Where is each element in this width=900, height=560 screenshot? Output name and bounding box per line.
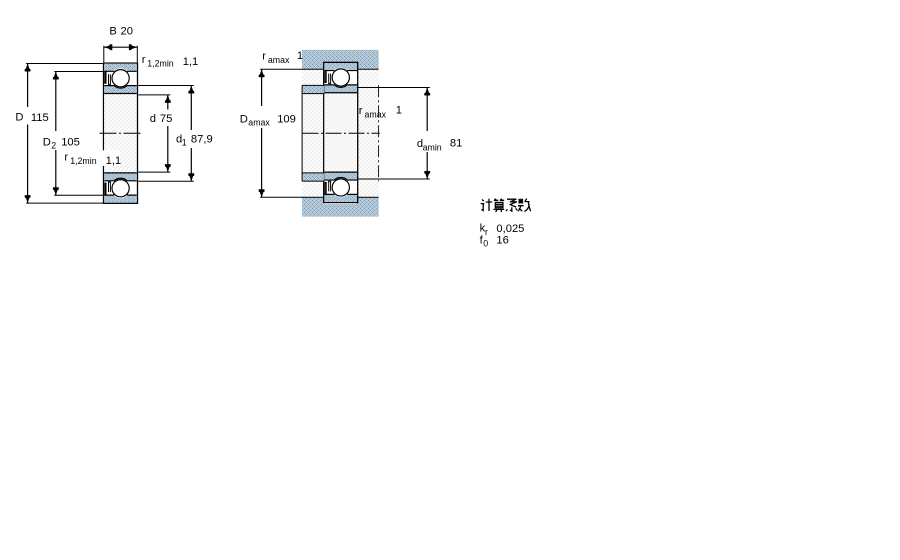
svg-text:r: r	[142, 54, 146, 66]
svg-text:115: 115	[31, 112, 49, 124]
svg-text:81: 81	[450, 138, 462, 150]
svg-text:1,2min: 1,2min	[70, 156, 97, 166]
svg-text:75: 75	[160, 113, 172, 125]
svg-text:amin: amin	[423, 142, 442, 152]
svg-text:2: 2	[51, 141, 56, 151]
svg-text:D: D	[15, 112, 23, 124]
svg-text:16: 16	[496, 235, 508, 247]
svg-text:105: 105	[61, 137, 80, 149]
svg-text:1,2min: 1,2min	[147, 59, 174, 69]
svg-text:20: 20	[121, 26, 133, 38]
svg-text:B: B	[109, 26, 116, 38]
svg-text:109: 109	[277, 114, 296, 126]
svg-text:r: r	[359, 105, 363, 117]
svg-text:D: D	[240, 113, 248, 125]
svg-text:r: r	[64, 152, 68, 164]
svg-text:1: 1	[182, 138, 187, 148]
svg-text:amax: amax	[365, 109, 387, 119]
svg-text:1,1: 1,1	[183, 56, 199, 68]
svg-text:d: d	[150, 113, 156, 125]
svg-text:0,025: 0,025	[496, 223, 524, 235]
svg-text:r: r	[262, 50, 266, 62]
svg-text:0: 0	[483, 239, 488, 249]
svg-text:r: r	[485, 227, 488, 237]
svg-text:D: D	[43, 136, 51, 148]
svg-text:amax: amax	[268, 55, 290, 65]
svg-text:1,1: 1,1	[106, 155, 122, 167]
svg-text:amax: amax	[248, 118, 270, 128]
svg-text:87,9: 87,9	[191, 134, 213, 146]
svg-text:1: 1	[396, 104, 402, 116]
svg-text:1: 1	[297, 50, 303, 62]
